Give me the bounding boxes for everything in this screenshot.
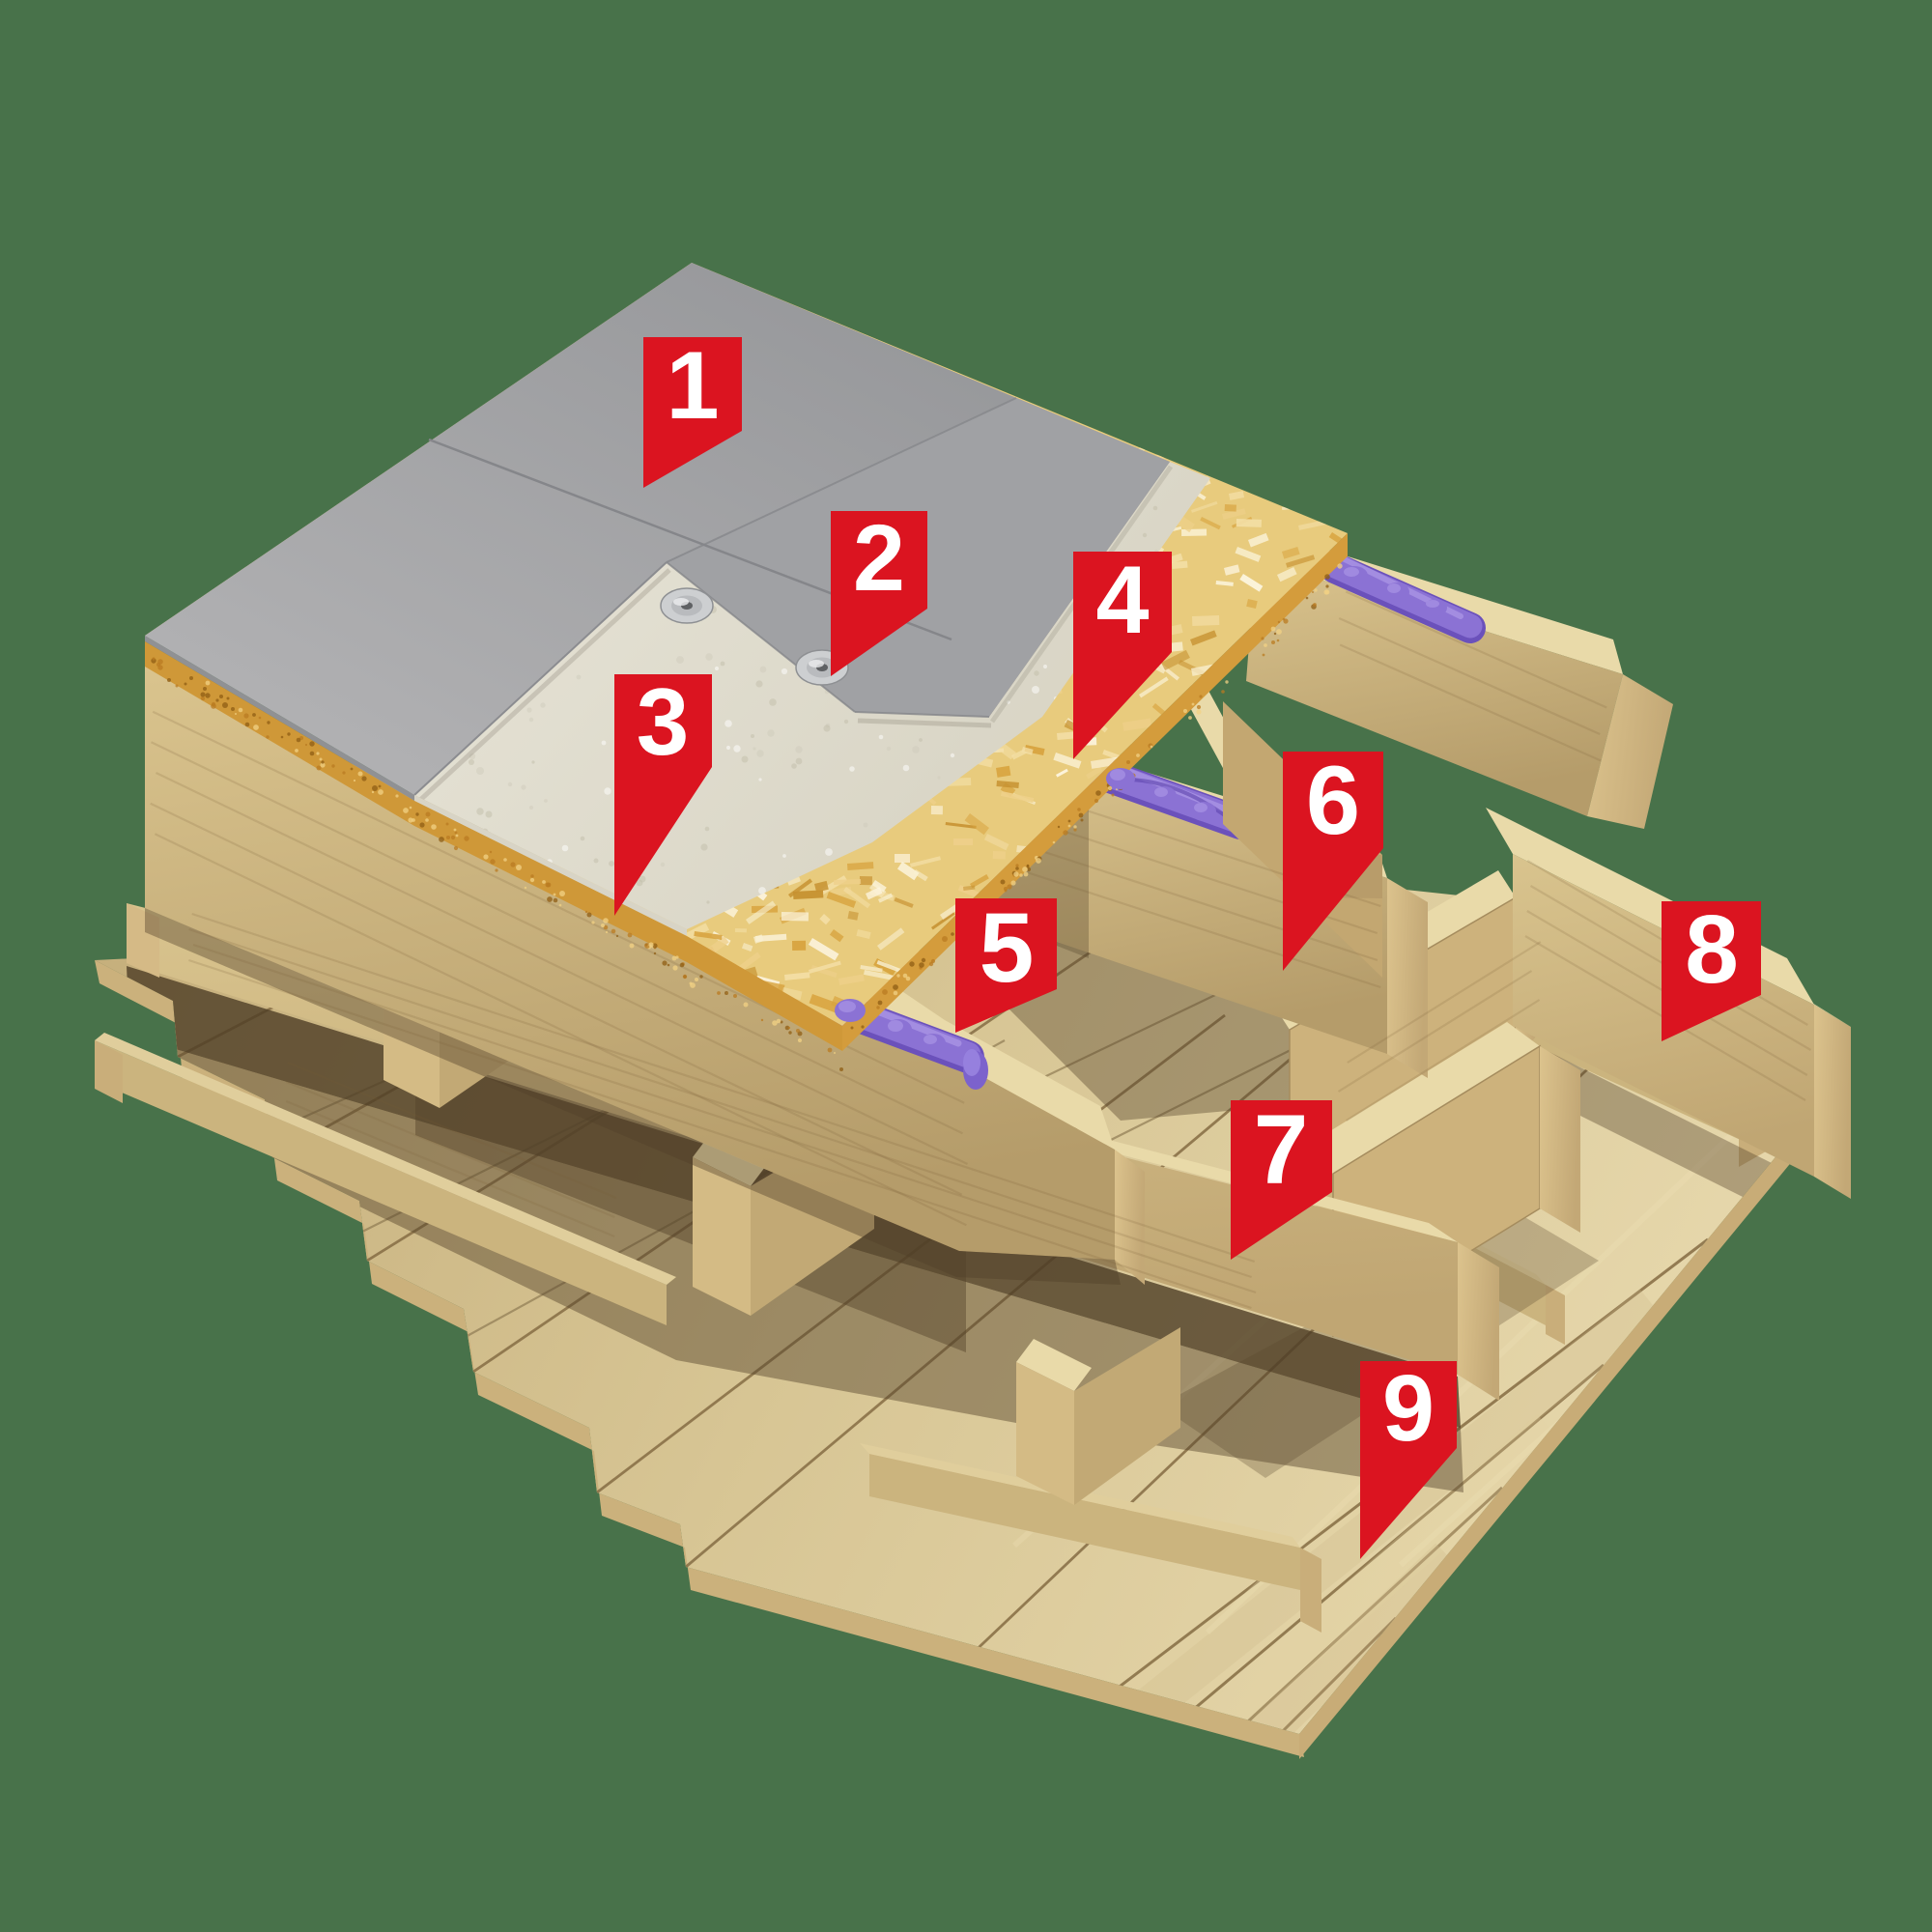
svg-text:7: 7 <box>1254 1094 1309 1205</box>
svg-text:5: 5 <box>980 893 1035 1003</box>
svg-text:3: 3 <box>637 668 690 775</box>
svg-text:9: 9 <box>1382 1355 1435 1461</box>
svg-text:8: 8 <box>1685 895 1739 1004</box>
svg-text:6: 6 <box>1306 747 1360 855</box>
svg-text:4: 4 <box>1095 546 1149 653</box>
svg-text:1: 1 <box>666 331 719 439</box>
svg-text:2: 2 <box>853 505 905 611</box>
